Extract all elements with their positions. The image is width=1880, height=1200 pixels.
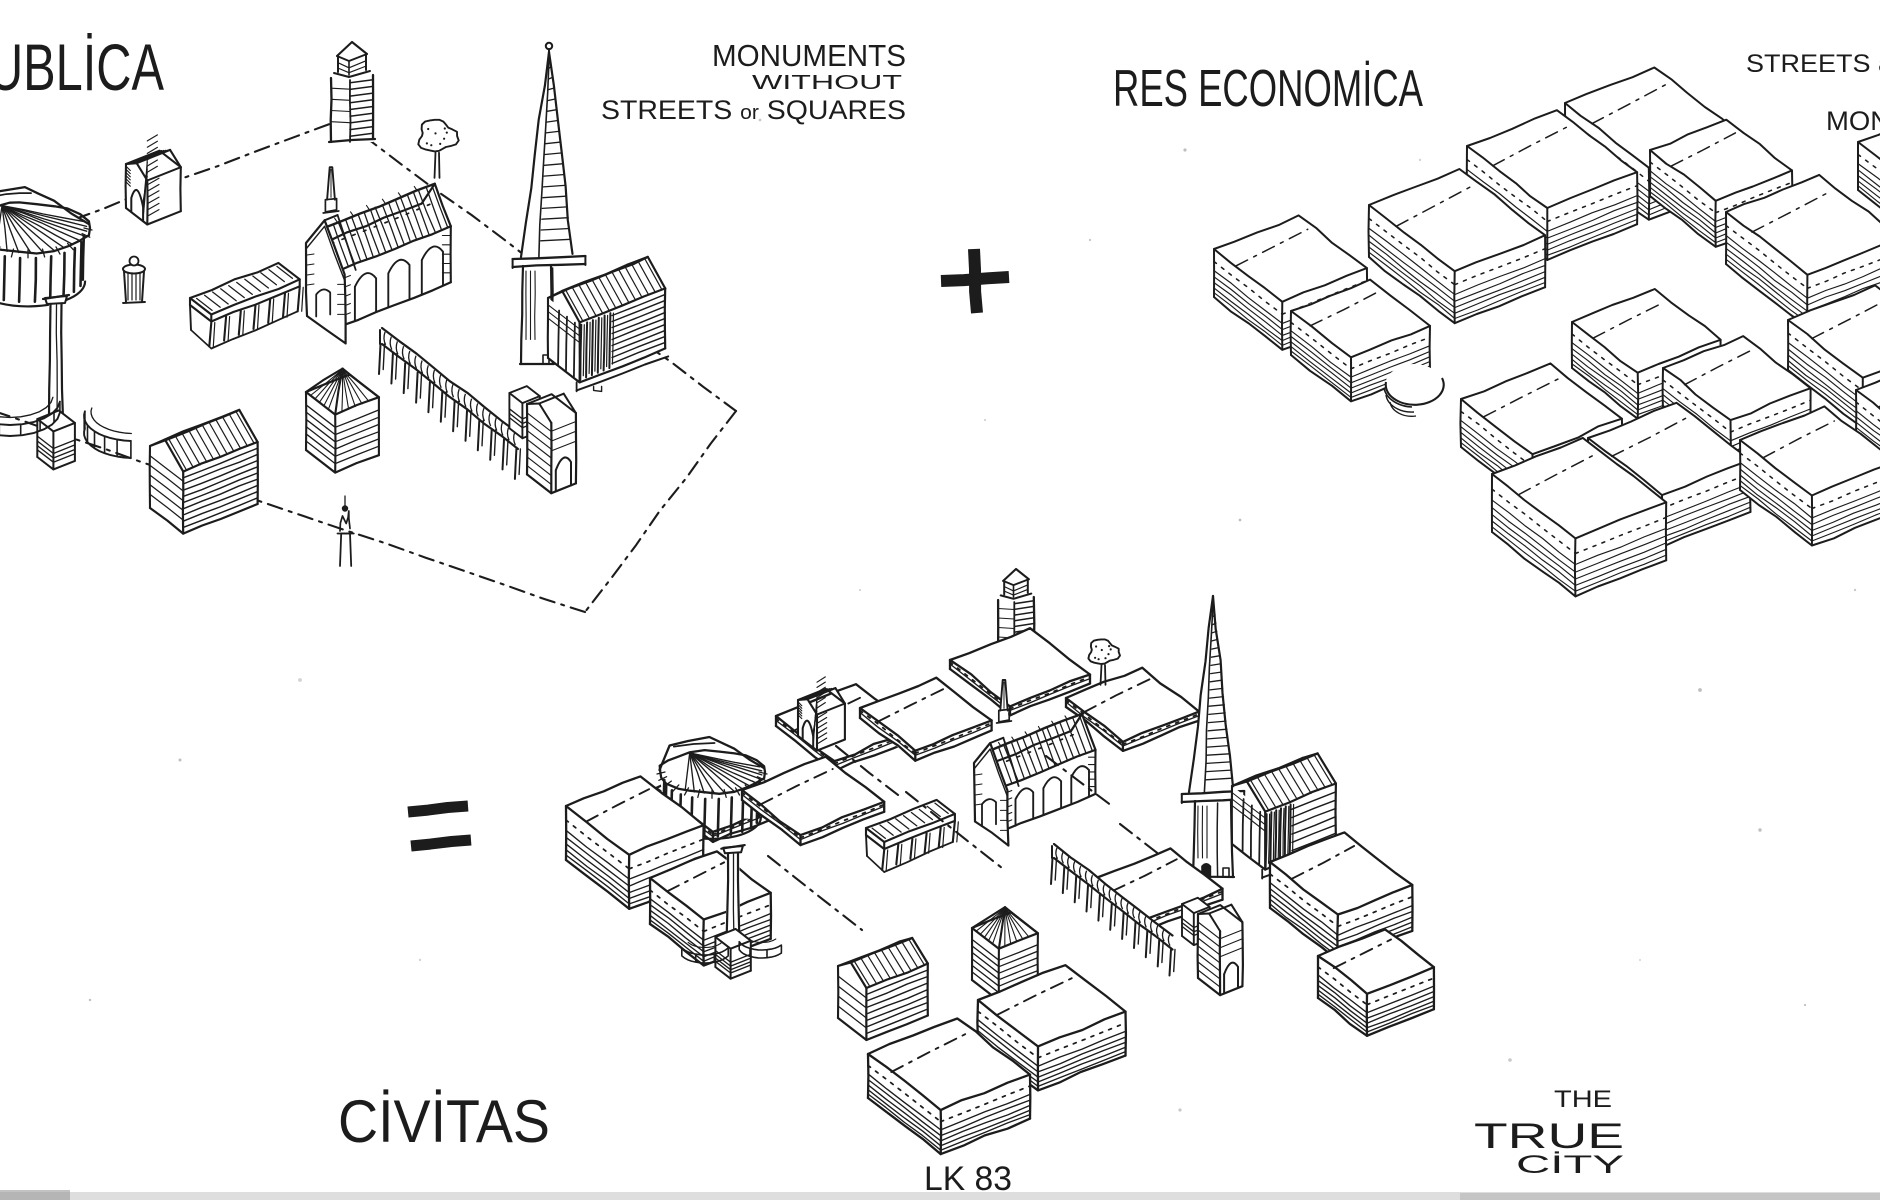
svg-text:UBLİCA: UBLİCA — [0, 30, 164, 104]
svg-text:MONUMENTS: MONUMENTS — [712, 38, 906, 73]
svg-text:CİTY: CİTY — [1516, 1150, 1625, 1179]
svg-text:MONU: MONU — [1826, 106, 1880, 136]
svg-text:WITHOUT: WITHOUT — [752, 72, 902, 94]
svg-text:STREETS an: STREETS an — [1746, 50, 1880, 78]
svg-text:THE: THE — [1554, 1086, 1612, 1113]
svg-text:STREETS or SQUARES: STREETS or SQUARES — [601, 95, 906, 125]
svg-text:RES ECONOMİCA: RES ECONOMİCA — [1113, 60, 1423, 118]
svg-text:CİVİTAS: CİVİTAS — [338, 1088, 550, 1155]
